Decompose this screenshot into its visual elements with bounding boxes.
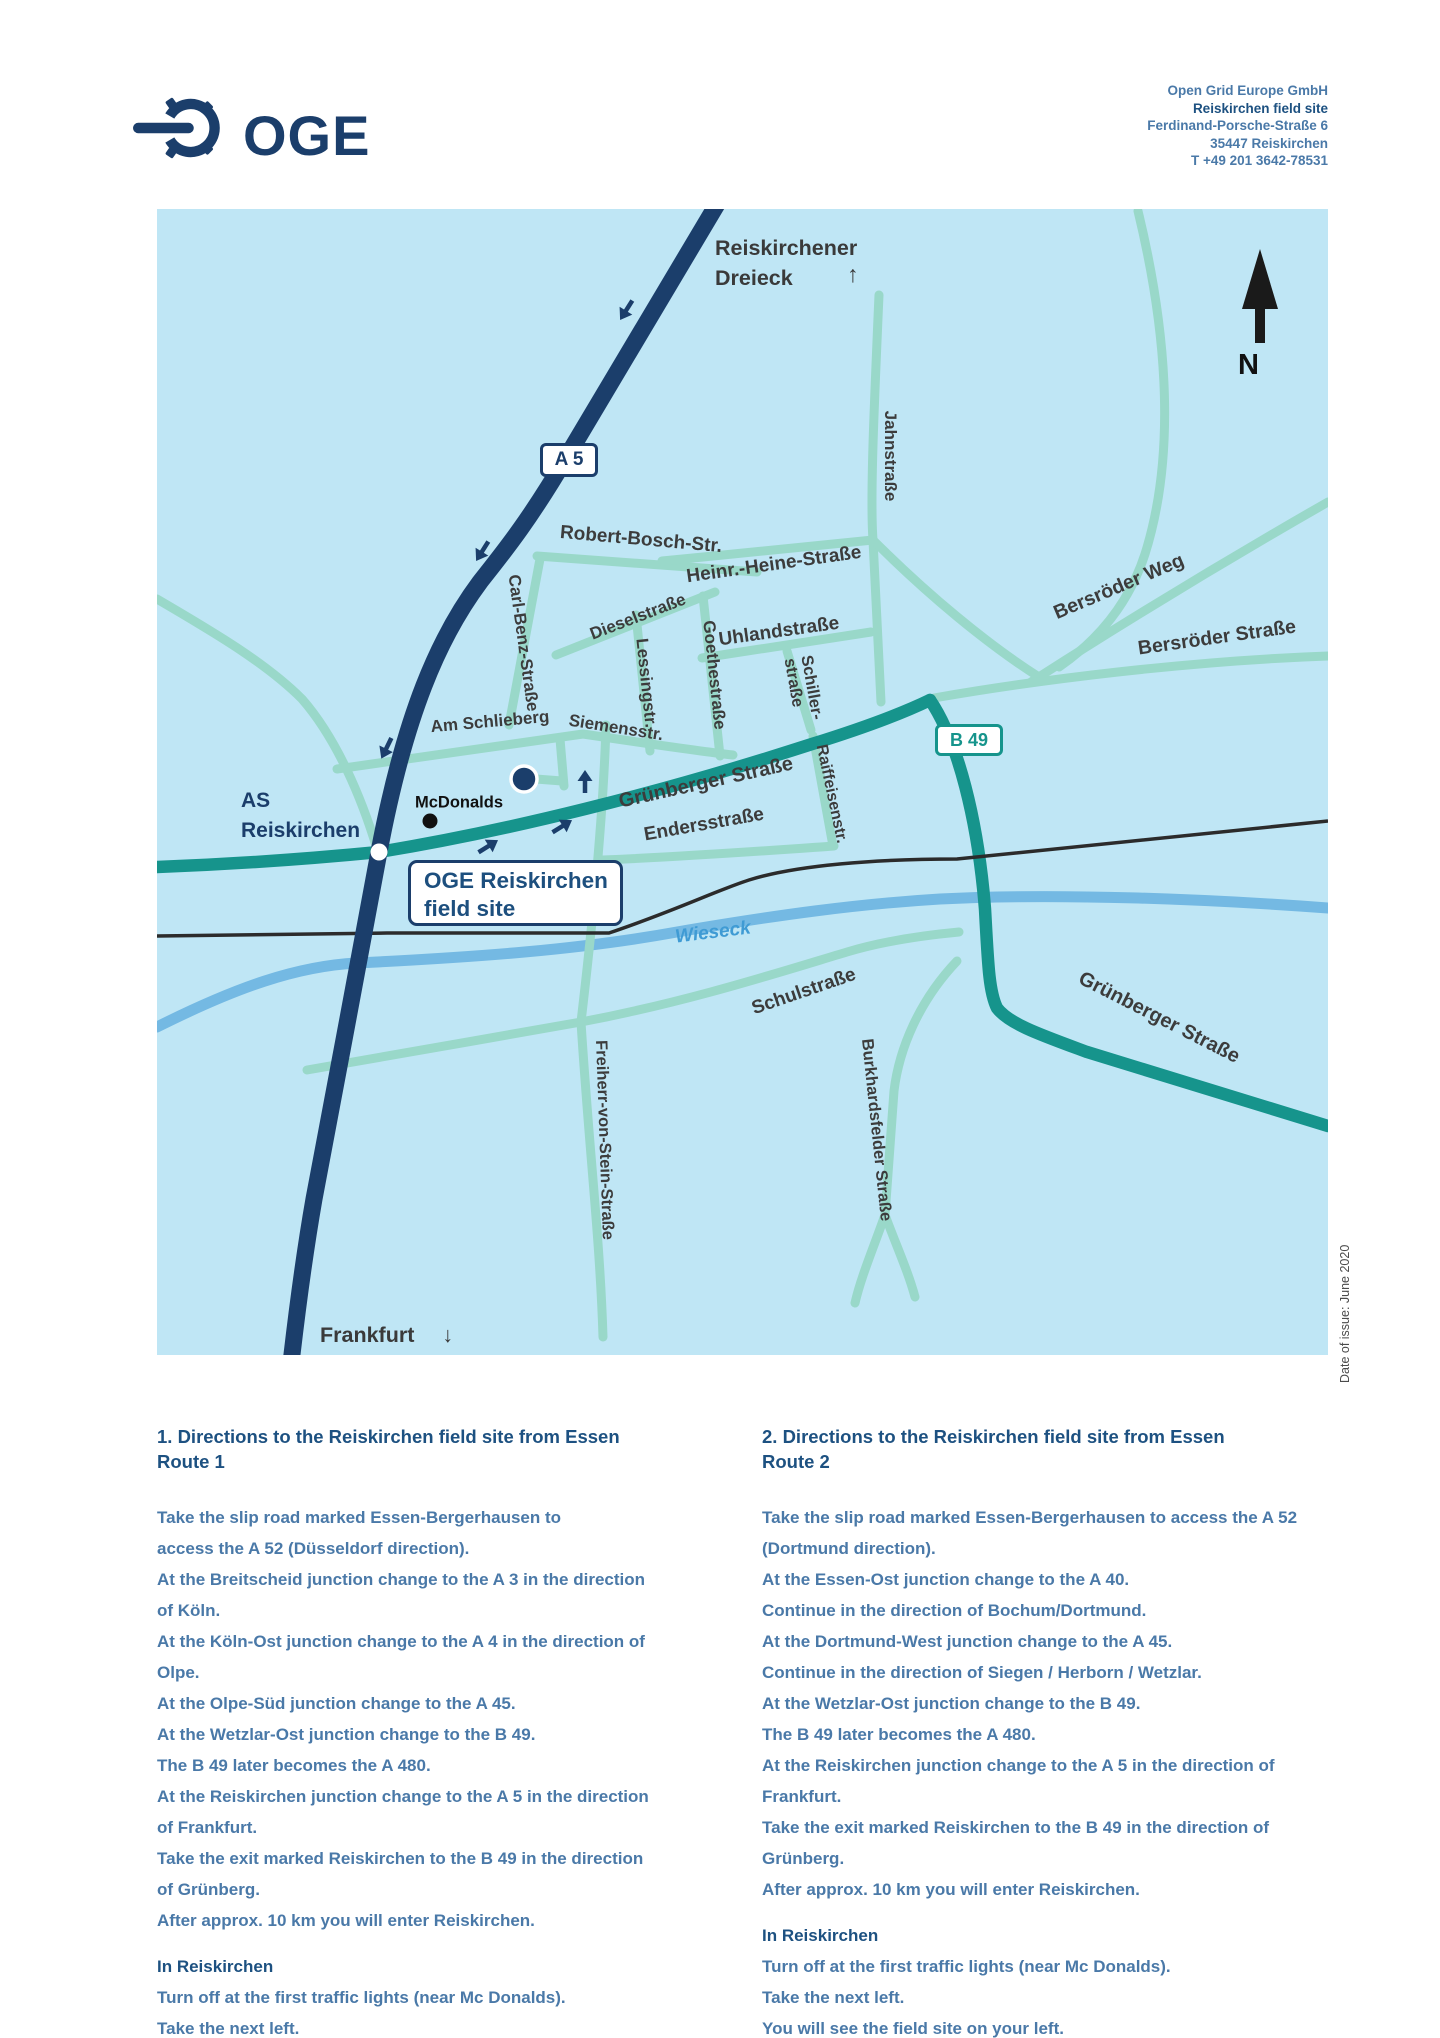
field-site-callout: OGE Reiskirchen field site (408, 860, 623, 926)
route-1-body: Take the slip road marked Essen-Bergerha… (157, 1502, 723, 1936)
route-1-sublines: Turn off at the first traffic lights (ne… (157, 1982, 723, 2038)
oge-logo: OGE (133, 80, 370, 176)
as-reiskirchen-label: AS Reiskirchen (241, 786, 360, 846)
route-1-subheading: In Reiskirchen (157, 1951, 723, 1982)
frankfurt-down-arrow: ↓ (442, 1323, 453, 1347)
road-am-schlieberg (337, 734, 583, 769)
road-freiherr (581, 725, 606, 1337)
site-map: Reiskirchener Dreieck ↑ N A 5 B 49 Rober… (157, 209, 1328, 1355)
oge-logo-icon (133, 80, 229, 176)
road-enders (603, 846, 834, 860)
road-b49 (930, 700, 1328, 1126)
frankfurt-label: Frankfurt↓ (320, 1323, 453, 1348)
route-2-subheading: In Reiskirchen (762, 1920, 1328, 1951)
route-2-heading: 2. Directions to the Reiskirchen field s… (762, 1424, 1328, 1474)
directions-document-page: OGE Open Grid Europe GmbH Reiskirchen fi… (0, 0, 1440, 2038)
north-arrow-icon (1242, 249, 1278, 343)
mcdonalds-dot (423, 814, 438, 829)
north-label: N (1238, 349, 1259, 382)
city-address: 35447 Reiskirchen (1147, 135, 1328, 153)
directions-route-1: 1. Directions to the Reiskirchen field s… (157, 1424, 723, 2038)
street-address: Ferdinand-Porsche-Straße 6 (1147, 117, 1328, 135)
field-site-dot (511, 766, 537, 792)
route-2-body: Take the slip road marked Essen-Bergerha… (762, 1502, 1328, 1905)
directions-route-2: 2. Directions to the Reiskirchen field s… (762, 1424, 1328, 2038)
mcdonalds-label: McDonalds (415, 794, 503, 813)
letterhead-address: Open Grid Europe GmbH Reiskirchen field … (1147, 82, 1328, 170)
road-stub-site (536, 779, 562, 781)
street-label-jahn: Jahnstraße (880, 411, 900, 502)
road-burkhardsfelder-branch-a (855, 1215, 885, 1303)
road-burkhardsfelder (885, 961, 957, 1215)
logo-wordmark: OGE (243, 103, 370, 168)
road-bersroeder-strasse (934, 656, 1328, 698)
b49-road-badge: B 49 (935, 724, 1003, 756)
route-2-sublines: Turn off at the first traffic lights (ne… (762, 1951, 1328, 2038)
date-of-issue-note: Date of issue: June 2020 (1338, 1183, 1356, 1383)
as-reiskirchen-junction-dot (371, 844, 388, 861)
road-jahn-east (873, 540, 1039, 677)
dreieck-label: Reiskirchener Dreieck (715, 233, 857, 293)
dreieck-up-arrow: ↑ (847, 261, 859, 288)
a5-road-badge: A 5 (540, 443, 598, 477)
phone-number: T +49 201 3642-78531 (1147, 152, 1328, 170)
company-name: Open Grid Europe GmbH (1147, 82, 1328, 100)
site-name: Reiskirchen field site (1147, 100, 1328, 118)
route-1-heading: 1. Directions to the Reiskirchen field s… (157, 1424, 723, 1474)
road-burkhardsfelder-branch-b (885, 1215, 915, 1297)
